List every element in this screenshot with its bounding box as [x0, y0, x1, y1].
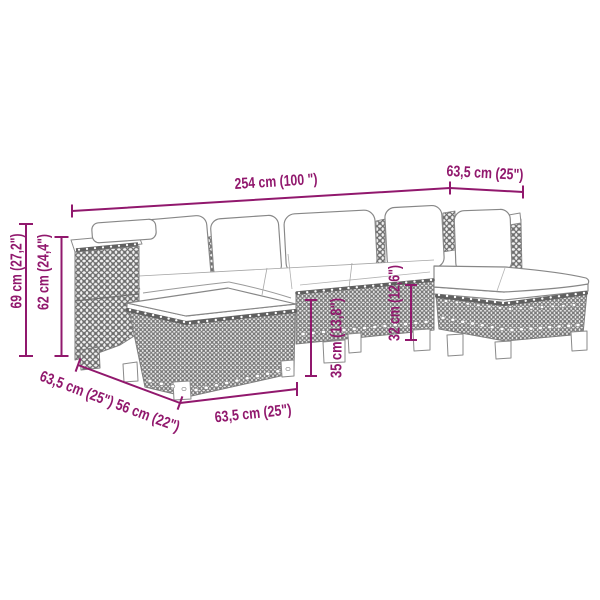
svg-text:32 cm (12,6"): 32 cm (12,6") [386, 265, 403, 341]
svg-text:69 cm (27,2"): 69 cm (27,2") [8, 234, 25, 309]
svg-text:62 cm (24,4"): 62 cm (24,4") [35, 234, 52, 310]
svg-text:35 cm (13,8"): 35 cm (13,8") [328, 298, 345, 378]
